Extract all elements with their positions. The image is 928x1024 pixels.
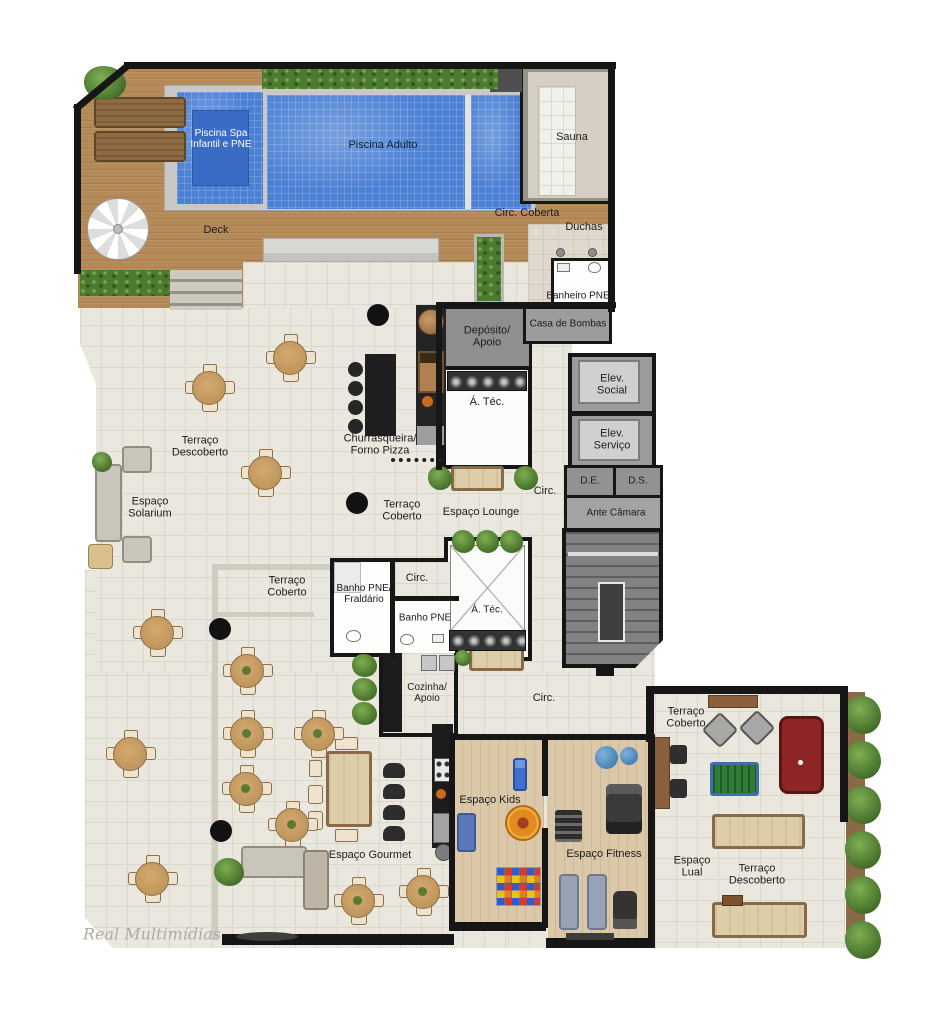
kids-carousel-icon	[505, 805, 541, 841]
dumbbell-rack-icon	[555, 810, 582, 842]
label-duchas: Duchas	[565, 221, 602, 233]
plant-icon	[214, 858, 244, 886]
label-circ-2: Circ.	[406, 572, 429, 584]
wall-central-v	[436, 306, 442, 470]
sink-icon	[557, 263, 570, 272]
kitchen-counter	[383, 653, 402, 732]
planter-hedge	[477, 237, 501, 301]
wall-deck-bottom	[436, 302, 616, 308]
label-circ-coberta: Circ. Coberta	[495, 207, 560, 219]
wall-kf-top	[449, 734, 652, 740]
label-terraco-coberto-2: Terraço Coberto	[267, 575, 306, 600]
label-espaco-kids: Espaço Kids	[459, 794, 520, 806]
label-banho-pne-2: Banho PNE	[399, 612, 451, 623]
brazier-icon	[722, 895, 743, 906]
wall-br-right	[840, 686, 848, 822]
fan-row-icon	[447, 371, 527, 391]
plant-icon	[500, 530, 523, 553]
label-ante-camara: Ante Câmara	[587, 507, 646, 518]
gym-machine-icon	[606, 784, 642, 834]
label-piscina-spa: Piscina Spa Infantil e PNE	[190, 128, 251, 150]
round-table	[267, 334, 313, 380]
label-terraco-descoberto-1: Terraço Descoberto	[172, 435, 228, 460]
exercise-ball-icon	[595, 746, 618, 769]
pool-table-ball	[798, 760, 803, 765]
label-terraco-coberto-1: Terraço Coberto	[382, 499, 421, 524]
wall-kids-fitness-b	[542, 828, 548, 928]
deck-steps	[170, 270, 242, 310]
label-elev-social: Elev. Social	[597, 373, 627, 398]
label-casa-de-bombas: Casa de Bombas	[530, 318, 607, 329]
hedge-top	[262, 68, 498, 89]
bench-dark	[236, 932, 298, 941]
round-table	[269, 801, 315, 847]
round-table	[129, 855, 175, 901]
washer-icon	[421, 655, 437, 671]
foosball-table	[710, 762, 759, 796]
plant-icon	[845, 876, 881, 914]
pool-divider	[465, 95, 471, 209]
wall-fitness-right	[648, 734, 655, 948]
round-table	[107, 730, 153, 776]
sun-lounger	[94, 97, 186, 128]
pergola-beam	[212, 612, 314, 617]
stair-landing	[568, 552, 658, 556]
banho-divider-h	[390, 596, 459, 601]
label-churrasqueira: Churrasqueira/ Forno Pizza	[344, 433, 417, 458]
exercise-mat	[559, 874, 579, 930]
desk-chair	[670, 779, 687, 798]
kids-play-rug	[496, 867, 541, 906]
round-table	[224, 647, 270, 693]
umbrella-icon	[87, 198, 149, 260]
bar-stools	[348, 362, 363, 377]
plant-icon	[476, 530, 499, 553]
round-table	[242, 449, 288, 495]
round-table	[295, 710, 341, 756]
water-reservoir	[450, 545, 525, 631]
plant-icon	[352, 654, 377, 677]
round-table	[335, 877, 381, 923]
label-espaco-lual: Espaço Lual	[674, 855, 711, 880]
sink-icon	[432, 634, 444, 643]
toilet-icon	[588, 262, 601, 273]
wall-bottom-kids	[450, 922, 546, 931]
plant-icon	[452, 530, 475, 553]
round-table	[134, 609, 180, 655]
utensil-icon	[436, 789, 446, 799]
label-banho-pne-fraldario: Banho PNE/ Fraldário	[336, 583, 391, 605]
round-table	[223, 765, 269, 811]
kids-slide-icon	[513, 758, 527, 791]
desk-chair	[670, 745, 687, 764]
washer-icon	[439, 655, 455, 671]
round-table	[186, 364, 232, 410]
plant-icon	[845, 921, 881, 959]
dining-table	[326, 751, 372, 827]
solarium-armchair	[122, 446, 152, 473]
plant-icon	[352, 702, 377, 725]
label-espaco-solarium: Espaço Solarium	[128, 496, 171, 521]
label-espaco-fitness: Espaço Fitness	[566, 848, 641, 860]
kids-sofa	[457, 813, 476, 852]
dining-chairs	[309, 760, 322, 777]
wall-br-top	[646, 686, 848, 694]
service-bench	[469, 648, 524, 671]
plant-icon	[845, 696, 881, 734]
label-terraco-coberto-3: Terraço Coberto	[666, 706, 705, 731]
label-espaco-lounge: Espaço Lounge	[443, 506, 519, 518]
churrasqueira-counter	[365, 354, 396, 436]
console-table	[708, 695, 758, 708]
hedge-lower	[80, 270, 170, 296]
pool-table	[779, 716, 824, 794]
plant-icon	[845, 831, 881, 869]
stair-stub-wall	[596, 664, 614, 676]
label-circ-1: Circ.	[534, 485, 557, 497]
plant-icon	[845, 786, 881, 824]
shower-head-icon	[556, 248, 565, 257]
toilet-icon	[400, 634, 414, 645]
banho-pne-room	[395, 600, 455, 653]
exercise-ball-icon	[620, 747, 638, 765]
exercise-bike-icon	[613, 891, 637, 929]
wall-left-deck	[74, 104, 81, 274]
label-terraco-descoberto-2: Terraço Descoberto	[729, 863, 785, 888]
column	[346, 492, 368, 514]
door-threshold	[391, 458, 442, 462]
plant-icon	[845, 741, 881, 779]
round-table	[224, 710, 270, 756]
label-sauna: Sauna	[556, 131, 588, 143]
elev-divider-wall	[568, 411, 656, 416]
shower-head-icon	[588, 248, 597, 257]
black-chairs	[383, 763, 405, 778]
lounge-bench	[451, 466, 504, 491]
wall-right-deck	[608, 62, 615, 312]
dining-chair	[335, 829, 358, 842]
label-cozinha-apoio: Cozinha/ Apoio	[407, 682, 446, 704]
pouf	[88, 544, 113, 569]
label-ds: D.S.	[628, 475, 647, 486]
wall-kids-fitness-a	[542, 738, 548, 796]
label-a-tec-2: Á. Téc.	[471, 604, 503, 615]
adult-pool	[267, 95, 465, 209]
label-espaco-gourmet: Espaço Gourmet	[329, 849, 412, 861]
lual-bench	[712, 902, 807, 938]
fan-row-icon	[449, 630, 526, 651]
gourmet-corner-seat	[303, 850, 329, 910]
exercise-mat	[587, 874, 607, 930]
wall-top	[124, 62, 616, 69]
wall-kids-left	[449, 738, 455, 931]
column	[210, 820, 232, 842]
round-table	[400, 868, 446, 914]
stair-rail	[598, 582, 625, 642]
gourmet-sofa	[241, 846, 307, 878]
label-elev-servico: Elev. Serviço	[594, 428, 631, 453]
utensil-icon	[422, 396, 433, 407]
floor-plan: Piscina Spa Infantil e PNE Piscina Adult…	[0, 0, 928, 1024]
label-deposito-apoio: Depósito/ Apoio	[464, 325, 510, 350]
plant-icon	[352, 678, 377, 701]
lual-bench	[712, 814, 805, 849]
label-deck: Deck	[203, 224, 228, 236]
label-de: D.E.	[580, 475, 599, 486]
column	[209, 618, 231, 640]
label-circ-3: Circ.	[533, 692, 556, 704]
label-banheiro-pne: Banheiro PNE	[546, 290, 609, 301]
wall-br-left	[646, 686, 654, 742]
doormat	[566, 933, 614, 940]
solarium-sofa	[95, 464, 122, 542]
label-a-tec-1: Á. Téc.	[470, 396, 505, 408]
plant-icon	[455, 650, 471, 666]
pool-bench	[263, 238, 439, 262]
solarium-armchair	[122, 536, 152, 563]
label-piscina-adulto: Piscina Adulto	[348, 139, 417, 151]
sun-lounger	[94, 131, 186, 162]
column	[367, 304, 389, 326]
plant-icon	[92, 452, 112, 472]
toilet-icon	[346, 630, 361, 642]
banho-divider-v	[390, 558, 395, 657]
watermark: Real Multimídias	[83, 925, 221, 944]
